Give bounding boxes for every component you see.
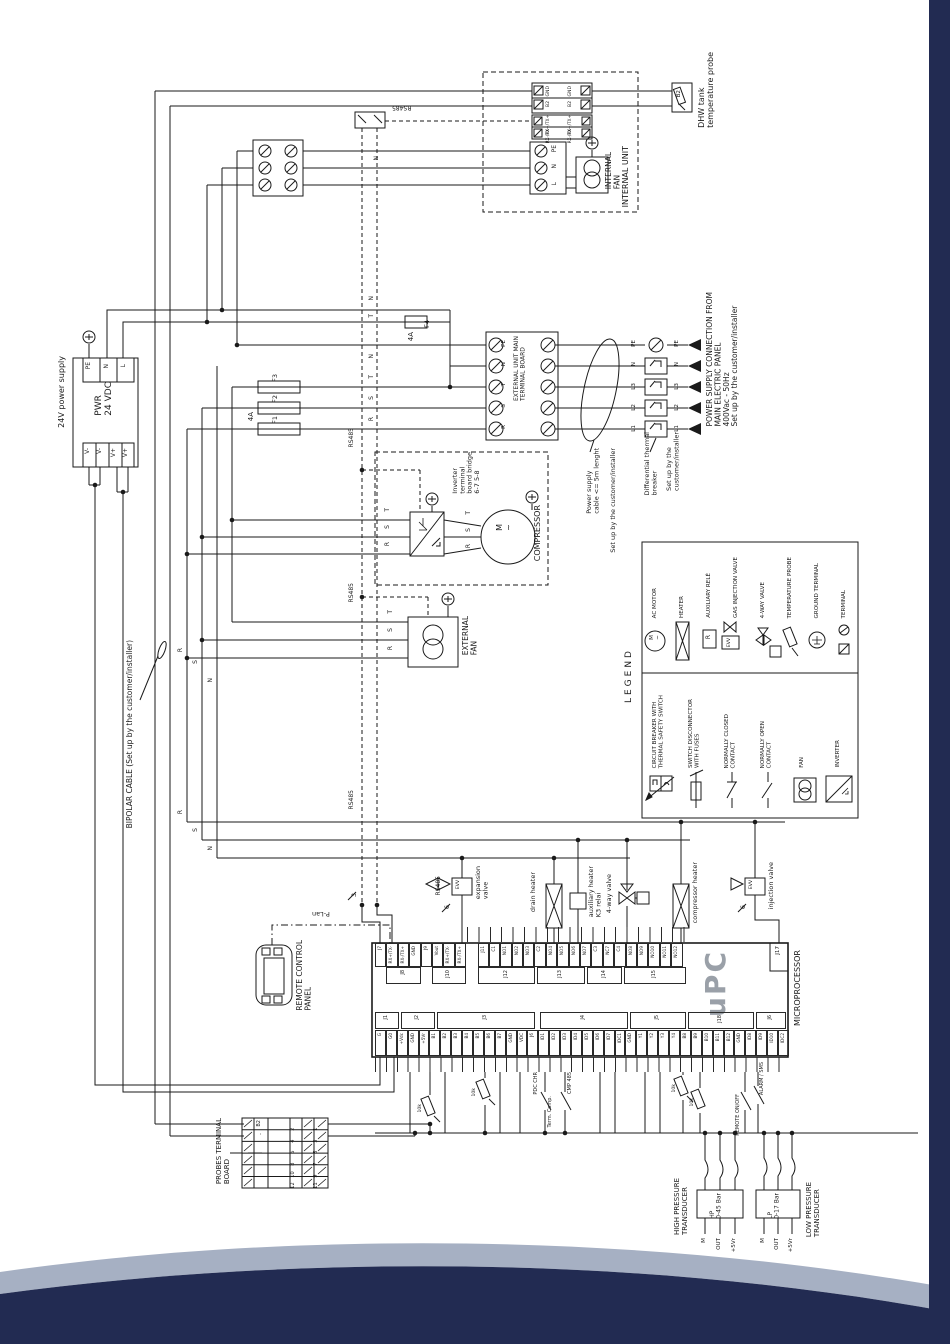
internal-fan-symbol xyxy=(566,137,608,193)
pin-cell: Y2 xyxy=(647,1030,658,1056)
pin-cell: NO9 xyxy=(637,943,648,967)
psu-terminal: PE xyxy=(86,362,93,369)
psu-terminal: V+ xyxy=(123,448,130,457)
wire-count-ticks xyxy=(348,892,746,912)
fuse-label: F4 xyxy=(424,320,431,328)
pin-cell: NO5 xyxy=(557,943,568,967)
rs485-label: RS485 xyxy=(349,790,356,809)
internal-unit-power-terminals xyxy=(530,142,566,194)
fuse-label: F1 xyxy=(272,416,279,424)
pin-cell: NO2 xyxy=(512,943,523,967)
thermistor-label: 10k xyxy=(690,1098,695,1107)
terminal-label: GND xyxy=(568,86,573,97)
compressor-heater-label: compressor heater xyxy=(692,862,699,923)
connector-bracket: J18 xyxy=(688,1012,754,1029)
legend-symbols xyxy=(645,622,852,808)
bottom-network xyxy=(328,1072,918,1136)
legend-item-label: HEATER xyxy=(679,596,685,618)
wire-label: R xyxy=(466,544,473,548)
transducer-pin: M xyxy=(760,1238,766,1243)
legend-item-label: AC MOTOR xyxy=(652,588,658,618)
supply-arrows xyxy=(688,339,701,435)
wire-count: 6 xyxy=(444,905,451,909)
terminal-label: B2 xyxy=(546,101,551,107)
pin-cell: B12 xyxy=(724,1030,735,1056)
pin-cell: NO7 xyxy=(580,943,591,967)
evv-text: EVV xyxy=(749,880,754,889)
pin-cell: NO4 xyxy=(546,943,557,967)
dhw-ref: B2 xyxy=(676,90,682,97)
row-label: N xyxy=(631,362,637,366)
pin-cell: NO3 xyxy=(523,943,534,967)
pin-cell: RX-/TX+ xyxy=(398,943,409,967)
legend-motor-text: M ~ xyxy=(649,635,662,640)
fuse-label: F3 xyxy=(272,374,279,382)
row-label: N xyxy=(501,362,507,366)
pin-cell: ID1 xyxy=(538,1030,549,1056)
microprocessor-label: MICROPROCESSOR xyxy=(794,950,803,1026)
probes-odd-numbers: 1357911 xyxy=(314,1119,320,1189)
pin-cell: ID5 xyxy=(582,1030,593,1056)
wiring-diagram-page: DHW tank temperature probe B2 INTERNAL U… xyxy=(0,0,950,1344)
internal-unit-label: INTERNAL UNIT xyxy=(622,146,631,207)
psu-label: 24V power supply xyxy=(58,356,67,428)
connector-bracket: J6 xyxy=(756,1012,786,1029)
psu-symbol xyxy=(73,331,394,1092)
plan-line xyxy=(272,925,390,945)
probes-left-label: B2 xyxy=(257,1120,263,1127)
pin-cell: J9 xyxy=(421,943,432,967)
dhw-probe-label: DHW tank temperature probe xyxy=(698,52,716,128)
wire-label: S xyxy=(193,828,200,832)
row-label: N xyxy=(674,362,680,366)
transducer-pin: M xyxy=(701,1238,707,1243)
row-label: L2 xyxy=(674,404,680,411)
footer-swoosh xyxy=(0,1243,950,1344)
wire-label: S xyxy=(385,525,392,529)
connector-bracket: J2 xyxy=(401,1012,435,1029)
transducer-pin: OUT xyxy=(716,1238,722,1250)
pin-cell: NO8 xyxy=(626,943,637,967)
pin-cell: ID4 xyxy=(571,1030,582,1056)
pin-cell: Vout xyxy=(432,943,443,967)
upc-title: uPC xyxy=(700,950,731,1017)
pin-cell: NC7 xyxy=(603,943,614,967)
wire-label: R xyxy=(385,542,392,546)
thermistor-label: 10k xyxy=(418,1104,423,1113)
pin-cell: RX+/TX- xyxy=(386,943,397,967)
row-label: PE xyxy=(674,340,680,347)
pin-cell: B5 xyxy=(473,1030,484,1056)
pin-cell: B7 xyxy=(495,1030,506,1056)
row-label: L1 xyxy=(674,425,680,432)
remote-panel-icon xyxy=(256,945,292,1005)
terminal-label: RX-/TX- xyxy=(568,128,573,143)
psu-terminal: L xyxy=(121,364,128,367)
legend-item-label: GROUND TERMINAL xyxy=(814,563,820,618)
connector-bracket: J14 xyxy=(587,967,622,984)
connector-bracket: J12 xyxy=(478,967,535,984)
pin-cell: C1 xyxy=(489,943,500,967)
row-label: PE xyxy=(501,340,507,347)
pin-cell: GND xyxy=(408,1030,419,1056)
contact-label: PDC CHR xyxy=(534,1072,540,1095)
row-label: L3 xyxy=(674,383,680,390)
bottom-wire-ticks xyxy=(375,1057,789,1072)
wire-label: T xyxy=(388,610,395,614)
wire-label: R xyxy=(178,810,185,814)
upc-top-pins: J7RX+/TX-RX-/TX+GNDJ9VoutRX+/TX-RX-/TX+J… xyxy=(375,943,683,967)
wire-label: S xyxy=(388,628,395,632)
hp-transducer-text: HP 0-45 Bar xyxy=(710,1193,723,1219)
pin-cell: J7 xyxy=(375,943,386,967)
terminal-label: RX-/TX- xyxy=(546,128,551,143)
psu-title: PWR 24 VDC xyxy=(94,382,114,416)
terminal-label: L xyxy=(552,182,559,185)
pin-cell: G0 xyxy=(386,1030,397,1056)
top-wire-ticks xyxy=(467,927,688,942)
pin-cell: NO6 xyxy=(569,943,580,967)
pin-cell: +5Vr xyxy=(419,1030,430,1056)
right-edge-band xyxy=(929,0,950,1344)
dhw-probe-symbol xyxy=(662,83,692,112)
row-label: R xyxy=(501,425,507,429)
pin-cell: Y3 xyxy=(658,1030,669,1056)
pin-cell: ID9 xyxy=(756,1030,767,1056)
external-fan-symbol xyxy=(187,593,458,667)
psu-terminal: V- xyxy=(97,448,104,454)
pin-cell: B4 xyxy=(462,1030,473,1056)
connector-bracket: J10 xyxy=(432,967,466,984)
wire-count: 3 xyxy=(351,893,358,897)
pin-cell: ID6 xyxy=(593,1030,604,1056)
pin-cell: VDC xyxy=(517,1030,528,1056)
thermistor-label: 10k xyxy=(472,1088,477,1097)
pin-cell: ID8 xyxy=(745,1030,756,1056)
cable-note: Power supply cable <= 5m lenght xyxy=(586,448,601,514)
wire-label: N xyxy=(369,296,376,301)
pin-cell: +Vdc xyxy=(397,1030,408,1056)
wire-label: T xyxy=(369,314,376,318)
rs485-label: RS485 xyxy=(436,876,443,895)
wire-label: N xyxy=(208,678,215,683)
transducer-pin: OUT xyxy=(774,1238,780,1250)
pin-cell: RX+/TX- xyxy=(443,943,454,967)
pin-cell: B9 xyxy=(691,1030,702,1056)
plan-label: P-Lan xyxy=(312,910,330,918)
contact-label: ALARM / SMS xyxy=(760,1062,766,1095)
legend-evv-text: EVV xyxy=(727,638,732,647)
thermistor-label: 10k xyxy=(672,1084,677,1093)
expansion-valve-label: expansion valve xyxy=(475,866,490,899)
row-label: T xyxy=(501,383,507,386)
evv-text: EVV xyxy=(456,880,461,889)
pin-cell: B10 xyxy=(702,1030,713,1056)
legend-item-label: INVERTER xyxy=(835,740,841,768)
contact-label: CMP 485 xyxy=(568,1072,574,1094)
fourway-valve-label: 4-way valve xyxy=(606,874,613,913)
psu-terminal: V+ xyxy=(111,448,118,457)
breaker-label: Differential thermal breaker xyxy=(644,432,659,496)
connector-bracket: J4 xyxy=(540,1012,628,1029)
terminal-label: GND xyxy=(546,86,551,97)
legend-item-label: 4-WAY VALVE xyxy=(760,582,766,618)
pin-cell: NO1 xyxy=(500,943,511,967)
pin-cell: ID2 xyxy=(549,1030,560,1056)
cable-note-sub: Set up by the customer/installer xyxy=(610,448,617,553)
pin-cell: GND xyxy=(506,1030,517,1056)
connector-bracket: J1 xyxy=(375,1012,399,1029)
row-label: S xyxy=(501,404,507,408)
contact-label: Term. Comp. xyxy=(548,1096,554,1127)
power-connection-note: POWER SUPPLY CONNECTION FROM MAIN ELECTR… xyxy=(706,292,740,427)
wire-label: S xyxy=(466,528,473,532)
bipolar-cable-label: BIPOLAR CABLE (Set up by the customer/in… xyxy=(126,640,134,828)
terminal-label: PE xyxy=(552,145,559,152)
rs485-label-top: RS485 xyxy=(392,104,411,111)
ext-board-title: EXTERNAL UNIT MAIN TERMINAL BOARD xyxy=(514,336,527,401)
remote-panel-label: REMOTE CONTROL PANEL xyxy=(296,940,313,1011)
pin-cell: NO11 xyxy=(660,943,671,967)
compressor-box xyxy=(187,452,548,585)
connector-bracket: J5 xyxy=(630,1012,686,1029)
wire-label: R xyxy=(369,417,376,421)
terminal-label: N xyxy=(552,164,559,169)
lp-transducer-text: LP 0-17 Bar xyxy=(768,1193,781,1219)
pin-cell: ID10 xyxy=(767,1030,778,1056)
terminal-label: B2 xyxy=(568,101,573,107)
connector-bracket: J8 xyxy=(386,967,421,984)
pin-cell: G xyxy=(375,1030,386,1056)
pin-cell: GND xyxy=(734,1030,745,1056)
bipolar-marker xyxy=(156,641,168,660)
breaker-sub: Set up by the customer/installer xyxy=(666,432,681,491)
pin-cell: GND xyxy=(409,943,420,967)
pin-cell: C3 xyxy=(591,943,602,967)
wire-label: S xyxy=(369,396,376,400)
rs485-label: RS485 xyxy=(349,583,356,602)
legend-item-label: FAN xyxy=(799,757,805,768)
supply-wires xyxy=(107,310,486,858)
pin-cell: NO10 xyxy=(648,943,659,967)
rs485-label: RS485 xyxy=(349,428,356,447)
fuse-label: F2 xyxy=(272,395,279,403)
wire-label: T xyxy=(466,511,473,515)
pin-cell: GND xyxy=(625,1030,636,1056)
pin-cell: B8 xyxy=(680,1030,691,1056)
indoor-connection-terminal-block xyxy=(253,140,303,196)
upc-bottom-pins: GG0+VdcGND+5VrB1B2B3B4B5B6B7GNDVDCJ6ID1I… xyxy=(375,1030,789,1056)
legend-item-label: AUXILIARY RELÈ xyxy=(706,573,712,618)
wire-label: N xyxy=(369,354,376,359)
aux-heater-label: auxiliary heater K3 relai xyxy=(588,866,603,917)
pin-cell: B11 xyxy=(713,1030,724,1056)
pin-cell: J6 xyxy=(527,1030,538,1056)
internal-fan-label: INTERNAL FAN xyxy=(605,152,622,189)
legend-item-label: TERMINAL xyxy=(841,590,847,618)
legend-item-label: TEMPERATURE PROBE xyxy=(787,557,793,618)
pin-cell: IDC2 xyxy=(778,1030,789,1056)
hp-transducer-label: HIGH PRESSURE TRANSDUCER xyxy=(674,1178,690,1235)
psu-terminal: N xyxy=(104,364,111,369)
wire-count: 6 xyxy=(740,905,747,909)
fuse-amp-label: 4A xyxy=(408,332,416,341)
pin-cell: NO12 xyxy=(671,943,682,967)
j17-label: J17 xyxy=(775,946,781,955)
pin-cell xyxy=(466,943,477,967)
wire-label: S xyxy=(193,660,200,664)
row-label: L1 xyxy=(631,425,637,432)
transducers-symbols xyxy=(697,1133,800,1234)
pin-cell: B3 xyxy=(451,1030,462,1056)
legend-title: LEGEND xyxy=(624,648,634,703)
compressor-label: COMPRESSOR xyxy=(534,505,543,561)
row-label: L2 xyxy=(631,404,637,411)
connector-bracket: J13 xyxy=(537,967,585,984)
wire-label: R xyxy=(388,646,395,650)
inverter-note: Inverter terminal board bridge 6-7 5-8 xyxy=(452,452,481,494)
transducer-pin: +5Vr xyxy=(788,1238,794,1252)
legend-relay-text: R xyxy=(706,635,713,639)
legend-item-label: NORMALLY OPEN CONTACT xyxy=(760,721,773,768)
connector-bracket: J3 xyxy=(437,1012,535,1029)
fuse-amp-label: 4A xyxy=(248,412,256,421)
external-fan-label: EXTERNAL FAN xyxy=(462,616,479,655)
pin-cell: ID3 xyxy=(560,1030,571,1056)
pin-cell: RX-/TX+ xyxy=(455,943,466,967)
wire-label: N xyxy=(374,156,381,161)
pin-cell: IDC1 xyxy=(615,1030,626,1056)
legend-item-label: CIRCUIT BREAKER WITH THERMAL SAFETY SWIT… xyxy=(652,695,665,768)
probes-left-label: - xyxy=(259,1133,265,1135)
power-cable-marker xyxy=(574,336,627,444)
pin-cell: ID7 xyxy=(604,1030,615,1056)
row-label: L3 xyxy=(631,383,637,390)
legend-item-label: SWITCH DISCONNECTOR WITH FUSES xyxy=(688,699,701,768)
wire-label: T xyxy=(369,375,376,379)
external-terminal-board xyxy=(486,332,645,440)
wire-label: T xyxy=(385,508,392,512)
probes-board-title: PROBES TERMINAL BOARD xyxy=(216,1118,232,1184)
pin-cell: C2 xyxy=(534,943,545,967)
probes-even-numbers: 24681012 xyxy=(291,1119,297,1189)
pin-cell: Y4 xyxy=(669,1030,680,1056)
legend-item-label: NORMALLY CLOSED CONTACT xyxy=(724,714,737,768)
motor-label: M ~ xyxy=(496,524,514,531)
connector-bracket: J15 xyxy=(624,967,686,984)
lp-transducer-label: LOW PRESSURE TRANSDUCER xyxy=(806,1182,822,1237)
pin-cell: C4 xyxy=(614,943,625,967)
wire-label: R xyxy=(178,648,185,652)
contact-label: REMOTE ON/OFF xyxy=(736,1094,742,1136)
wire-label: N xyxy=(208,846,215,851)
row-label: PE xyxy=(631,340,637,347)
pin-cell: B1 xyxy=(429,1030,440,1056)
pin-cell: B6 xyxy=(484,1030,495,1056)
transducer-pin: +5Vr xyxy=(731,1238,737,1252)
rs485-network xyxy=(355,112,530,905)
injection-valve-label: injection valve xyxy=(768,862,775,909)
wiring-lineart xyxy=(0,0,950,1344)
internal-unit-signal-terminals xyxy=(532,83,592,139)
pin-cell: Y1 xyxy=(636,1030,647,1056)
legend-item-label: GAS INJECTION VALVE xyxy=(733,557,739,618)
psu-terminal: V- xyxy=(85,448,92,454)
drain-heater-label: drain heater xyxy=(530,872,537,912)
pin-cell: B2 xyxy=(440,1030,451,1056)
rs485-to-upc xyxy=(362,905,392,943)
pin-cell: J11 xyxy=(478,943,489,967)
